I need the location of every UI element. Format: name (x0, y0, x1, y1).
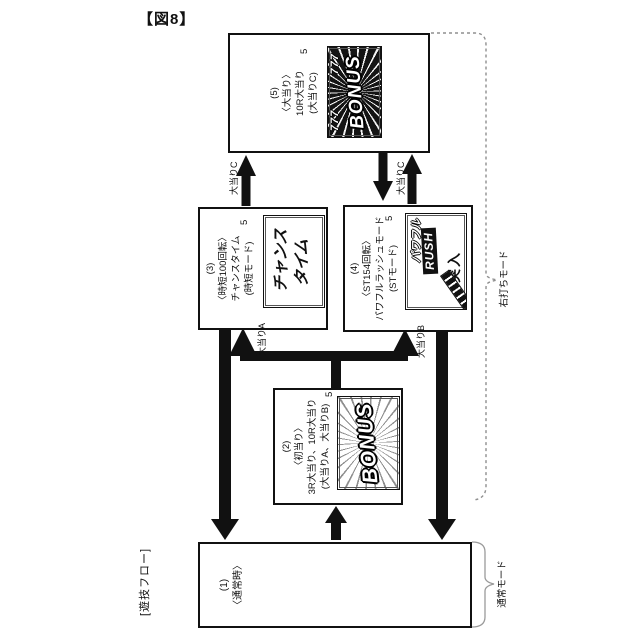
ref5-label-box2: 5 (324, 392, 335, 397)
ref5-label-box4: 5 (384, 216, 395, 221)
box5-bonus-text: BONUS (342, 46, 370, 137)
ref5-label-box5: 5 (299, 49, 310, 54)
box5-display-screen: 777 777 BONUS (327, 46, 382, 138)
box-chance-time: (3) 〈時短100回転〉 チャンスタイム (時短モード) チャンス タイム (198, 207, 328, 330)
box3-screen-line1: チャンス (271, 215, 292, 307)
ref5-label-box3: 5 (239, 220, 250, 225)
jackpot-b-label: 大当りB (414, 325, 427, 358)
box3-display-screen: チャンス タイム (263, 215, 325, 308)
box4-detail2: (STモード) (387, 207, 400, 330)
box5-number: (5) (268, 35, 281, 151)
patent-figure-page: 【図8】 (0, 0, 640, 640)
box2-title: 〈初当り〉 (293, 390, 306, 503)
box1-number: (1) (218, 544, 232, 626)
arrow-box3-to-box1 (211, 330, 239, 540)
box3-screen-line2: タイム (292, 216, 313, 308)
jackpot-c-left-label: 大当りC (227, 162, 240, 196)
box3-detail2: (時短モード) (243, 209, 256, 328)
arrow-box4-to-box1 (428, 332, 456, 540)
box-first-jackpot: (2) 〈初当り〉 3R大当り、10R大当り (大当りA、大当りB) BONUS (273, 388, 403, 505)
normal-mode-label: 通常モード (494, 550, 508, 618)
box5-sevens-left: 777 (329, 110, 341, 131)
right-strike-mode-label: 右打ちモード (496, 238, 510, 320)
jackpot-a-label: 大当りA (255, 323, 268, 356)
arrow-box1-to-box2 (325, 506, 347, 540)
box-jackpot: (5) 〈大当り〉 10R大当り (大当りC) 777 777 BONUS (228, 33, 430, 153)
game-flow-label: [遊技フロー] (136, 548, 152, 616)
box4-title: 〈ST154回転〉 (361, 207, 374, 330)
arrow-box5-to-box4 (373, 153, 393, 201)
box2-display-screen: BONUS (337, 396, 400, 490)
box2-number: (2) (280, 390, 293, 503)
box3-number: (3) (204, 209, 217, 328)
box-normal-state: (1) 〈通常時〉 (198, 542, 472, 628)
normal-mode-brace (472, 542, 494, 627)
box4-display-screen: パワフル RUSH 突入 (405, 213, 467, 310)
box2-detail1: 3R大当り、10R大当り (306, 390, 319, 503)
box-powerful-rush-mode: (4) 〈ST154回転〉 パワフルラッシュモード (STモード) パワフル R… (343, 205, 473, 332)
box5-title: 〈大当り〉 (281, 35, 294, 151)
box4-screen-rush-text: RUSH (421, 228, 438, 275)
box2-bonus-text: BONUS (352, 396, 384, 490)
box4-detail1: パワフルラッシュモード (374, 207, 387, 330)
jackpot-c-right-label: 大当りC (394, 162, 407, 196)
box3-detail1: チャンスタイム (230, 209, 243, 328)
box2-detail2: (大当りA、大当りB) (319, 390, 332, 503)
box3-title: 〈時短100回転〉 (217, 209, 230, 328)
box1-title: 〈通常時〉 (232, 544, 246, 626)
diagram-rotated-canvas: [遊技フロー] (1) 〈通常時〉 (2) 〈初当り〉 3R大当り、10R大当り… (0, 0, 640, 640)
box5-sevens-right: 777 (329, 53, 341, 74)
box4-number: (4) (348, 207, 361, 330)
